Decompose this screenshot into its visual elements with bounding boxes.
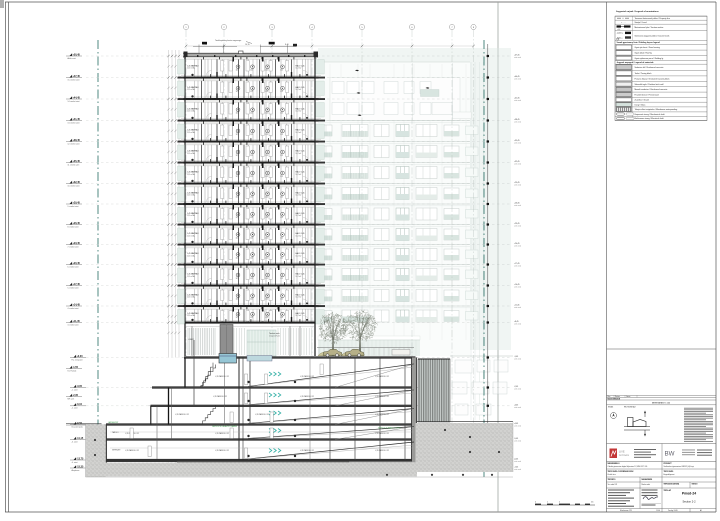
svg-text:12,5: 12,5 <box>280 217 283 219</box>
svg-text:Feszitett beton / Prestressed: Feszitett beton / Prestressed <box>635 94 659 97</box>
svg-text:MF. szint: MF. szint <box>68 397 75 400</box>
svg-text:Obudai gimnazium digital fejle: Obudai gimnazium digital fejlesztes 12,3… <box>608 465 648 468</box>
svg-text:12,5: 12,5 <box>265 197 268 199</box>
svg-text:-2,35: -2,35 <box>73 394 79 397</box>
svg-text:12,5: 12,5 <box>280 317 283 319</box>
svg-text:-13,75: -13,75 <box>77 457 84 460</box>
svg-text:GEPESZET: GEPESZET <box>112 450 121 452</box>
svg-text:1,45 NAPPALI: 1,45 NAPPALI <box>187 232 199 235</box>
svg-text:Leiras: Leiras <box>626 396 631 398</box>
svg-text:13. emelet szint: 13. emelet szint <box>68 121 80 124</box>
svg-text:HALO 1,45: HALO 1,45 <box>296 252 305 255</box>
svg-text:HALO 1,45: HALO 1,45 <box>296 312 305 315</box>
svg-text:14,2 m2: 14,2 m2 <box>296 276 302 278</box>
svg-text:+32,45: +32,45 <box>514 161 520 163</box>
svg-text:-11,15: -11,15 <box>77 437 84 440</box>
svg-text:Valaszfal tegla / Partition br: Valaszfal tegla / Partition brick wall <box>635 83 665 86</box>
svg-text:Architekts: Architekts <box>619 454 630 457</box>
svg-text:MUNKATARS: MUNKATARS <box>642 478 653 481</box>
svg-text:HALO 1,45: HALO 1,45 <box>296 64 305 67</box>
svg-text:7. emelet szint: 7. emelet szint <box>68 245 79 248</box>
svg-text:Vasalt gyartmany lista / Foldi: Vasalt gyartmany lista / Folding layers … <box>617 41 661 44</box>
svg-text:+14,45: +14,45 <box>73 303 81 306</box>
svg-text:MODOSITASOK: MODOSITASOK <box>608 398 621 401</box>
svg-text:Gepeszeti strang / Mechanical: Gepeszeti strang / Mechanical shaft <box>635 113 666 116</box>
svg-text:+29,45: +29,45 <box>73 201 81 204</box>
svg-text:-2,05: -2,05 <box>514 386 518 388</box>
svg-text:-8,55: -8,55 <box>77 422 83 425</box>
svg-text:+17,45: +17,45 <box>73 283 81 286</box>
svg-text:+38,45: +38,45 <box>73 139 81 142</box>
svg-text:Tetokert szerk.: Tetokert szerk. <box>269 332 281 335</box>
svg-text:PROJEKT: PROJEKT <box>664 463 673 465</box>
svg-text:14. emelet szint: 14. emelet szint <box>68 100 80 103</box>
svg-text:+20,45: +20,45 <box>73 262 81 265</box>
svg-text:-1. szint: -1. szint <box>72 388 78 391</box>
svg-text:10. emelet szint: 10. emelet szint <box>68 184 80 187</box>
svg-text:12,5: 12,5 <box>250 299 253 301</box>
svg-text:Zuzottko / Gravel: Zuzottko / Gravel <box>635 99 650 102</box>
svg-text:HALO 1,45: HALO 1,45 <box>296 293 305 296</box>
svg-text:Utcaszint jarda: Utcaszint jarda <box>72 425 83 428</box>
svg-text:12,5: 12,5 <box>250 317 253 319</box>
svg-text:12,5: 12,5 <box>236 197 239 199</box>
svg-text:14,2 m2: 14,2 m2 <box>296 195 302 197</box>
svg-text:+0,0: +0,0 <box>617 29 620 31</box>
svg-text:12,5: 12,5 <box>280 176 283 178</box>
svg-text:+26,45: +26,45 <box>73 222 81 225</box>
svg-text:Porozus falazat / Insulated ma: Porozus falazat / Insulated masonry bloc… <box>635 78 670 81</box>
svg-text:-2. szint: -2. szint <box>72 407 78 410</box>
svg-text:+41,45: +41,45 <box>514 98 520 100</box>
svg-text:-4,05: -4,05 <box>514 423 518 425</box>
svg-text:12,5: 12,5 <box>265 299 268 301</box>
svg-text:-1,55: -1,55 <box>73 366 79 369</box>
svg-text:+35,45: +35,45 <box>514 140 520 142</box>
svg-text:12,5: 12,5 <box>236 155 239 157</box>
svg-text:HALO 1,45: HALO 1,45 <box>296 273 305 276</box>
svg-text:12,5: 12,5 <box>250 237 253 239</box>
svg-text:1,45 NAPPALI: 1,45 NAPPALI <box>187 129 199 132</box>
svg-text:HALO 1,45: HALO 1,45 <box>296 129 305 132</box>
svg-text:-3,05: -3,05 <box>514 405 518 407</box>
svg-text:+47,45: +47,45 <box>514 55 520 57</box>
svg-text:+17,45: +17,45 <box>514 263 520 265</box>
svg-text:12,5: 12,5 <box>236 317 239 319</box>
svg-text:+44,45: +44,45 <box>73 96 81 99</box>
svg-text:12,5: 12,5 <box>236 299 239 301</box>
svg-text:Munkaszam 123: Munkaszam 123 <box>620 510 632 512</box>
svg-text:12. emelet szint: 12. emelet szint <box>68 142 80 145</box>
svg-text:+35,45: +35,45 <box>73 160 81 163</box>
svg-text:TERV FAZIS: TERV FAZIS <box>664 470 675 473</box>
svg-text:1:100: 1:100 <box>656 510 660 512</box>
svg-text:12,5: 12,5 <box>236 176 239 178</box>
svg-text:+ . . .: + . . . <box>621 22 626 24</box>
svg-text:Szintjel / Level: Szintjel / Level <box>635 21 648 24</box>
svg-text:0: 0 <box>535 502 536 504</box>
svg-text:Vasbeton fal / Reinforced conc: Vasbeton fal / Reinforced concrete <box>635 66 664 69</box>
svg-text:12,5: 12,5 <box>250 155 253 157</box>
svg-text:TERV FAZIS / KOZREMUKODOK: TERV FAZIS / KOZREMUKODOK <box>608 470 635 473</box>
svg-text:Talajviz elleni szigeteles / M: Talajviz elleni szigeteles / Membrane wa… <box>635 108 678 111</box>
svg-text:12,5: 12,5 <box>280 197 283 199</box>
svg-text:Terko / Paving block: Terko / Paving block <box>635 72 652 75</box>
svg-text:-4. szint: -4. szint <box>72 461 78 464</box>
svg-text:MERETARANY 1:100: MERETARANY 1:100 <box>652 401 670 404</box>
svg-text:14,2 m2: 14,2 m2 <box>296 215 302 217</box>
svg-text:-3,05: -3,05 <box>77 385 83 388</box>
svg-text:12,5: 12,5 <box>265 91 268 93</box>
svg-text:14,2 m2: 14,2 m2 <box>296 297 302 299</box>
svg-text:11. emelet szint: 11. emelet szint <box>68 163 80 166</box>
svg-text:12,5: 12,5 <box>250 217 253 219</box>
svg-text:14,2 m2: 14,2 m2 <box>296 174 302 176</box>
svg-text:Fsz. terepszint: Fsz. terepszint <box>72 358 84 361</box>
svg-text:12,5: 12,5 <box>265 317 268 319</box>
svg-text:12,5: 12,5 <box>250 70 253 72</box>
svg-text:12,5: 12,5 <box>236 91 239 93</box>
svg-text:JARDASZINT: JARDASZINT <box>108 421 118 424</box>
svg-text:+8,45: +8,45 <box>514 321 519 323</box>
svg-text:+44,45: +44,45 <box>514 76 520 78</box>
svg-text:HALO 1,45: HALO 1,45 <box>296 107 305 110</box>
svg-text:1,45 NAPPALI: 1,45 NAPPALI <box>187 312 199 315</box>
svg-text:8. emelet szint: 8. emelet szint <box>68 225 79 228</box>
svg-text:1,45 NAPPALI: 1,45 NAPPALI <box>187 293 199 296</box>
svg-text:+0,00 =: +0,00 = <box>617 33 624 35</box>
svg-text:Tetofelepitmeny kontur magassa: Tetofelepitmeny kontur magassaga <box>215 39 241 42</box>
svg-text:12,5: 12,5 <box>250 91 253 93</box>
svg-text:-6,05: -6,05 <box>514 459 518 461</box>
svg-text:+47,45: +47,45 <box>73 75 81 78</box>
svg-text:HALO 1,45: HALO 1,45 <box>296 86 305 89</box>
svg-text:1,45 NAPPALI: 1,45 NAPPALI <box>187 86 199 89</box>
svg-text:4. emelet szint: 4. emelet szint <box>68 307 79 310</box>
svg-text:12,5: 12,5 <box>250 113 253 115</box>
svg-text:12,5: 12,5 <box>280 237 283 239</box>
svg-text:12,5: 12,5 <box>280 91 283 93</box>
svg-text:12,5: 12,5 <box>250 134 253 136</box>
svg-text:+26,45: +26,45 <box>514 203 520 205</box>
svg-text:Tervezesi hatarvonal jeloles /: Tervezesi hatarvonal jeloles / Property … <box>635 17 670 20</box>
svg-text:12,5: 12,5 <box>265 217 268 219</box>
svg-text:12,5: 12,5 <box>280 70 283 72</box>
svg-text:HALO 1,45: HALO 1,45 <box>296 212 305 215</box>
svg-text:12,5: 12,5 <box>265 278 268 280</box>
svg-text:Szellemkert gimnazium 036912 (: Szellemkert gimnazium 036912 (H) Irinyi <box>664 465 695 468</box>
svg-text:GEPKOCSI BEALLO SZINT: GEPKOCSI BEALLO SZINT <box>378 427 401 430</box>
svg-text:-5,05: -5,05 <box>514 438 518 440</box>
svg-text:-7,05: -7,05 <box>514 467 518 469</box>
svg-text:Gyari nyilaszaro porral / Fold: Gyari nyilaszaro porral / Folding lg <box>635 57 664 60</box>
svg-text:12,5: 12,5 <box>236 70 239 72</box>
svg-text:12,5: 12,5 <box>265 257 268 259</box>
svg-text:-1,05: -1,05 <box>514 356 518 358</box>
svg-text:12,5: 12,5 <box>280 257 283 259</box>
svg-text:TERVEZO: TERVEZO <box>608 479 617 481</box>
svg-text:14,2 m2: 14,2 m2 <box>296 132 302 134</box>
svg-text:+41,45: +41,45 <box>73 118 81 121</box>
svg-text:Tervlap 24-05: Tervlap 24-05 <box>668 510 678 512</box>
svg-text:Attika szint: Attika szint <box>68 57 77 60</box>
svg-text:+23,45: +23,45 <box>514 223 520 225</box>
svg-text:Szintezesi alappont jeloles /: Szintezesi alappont jeloles / Datum leve… <box>635 34 670 37</box>
svg-text:12,5: 12,5 <box>280 113 283 115</box>
svg-text:MEGRENDELO: MEGRENDELO <box>608 463 621 465</box>
svg-text:+20,45: +20,45 <box>514 243 520 245</box>
svg-text:-3. szint: -3. szint <box>72 440 78 443</box>
svg-text:12,5: 12,5 <box>236 237 239 239</box>
svg-text:14,2 m2: 14,2 m2 <box>296 315 302 317</box>
svg-text:1,45 NAPPALI: 1,45 NAPPALI <box>187 273 199 276</box>
svg-text:12,5: 12,5 <box>265 70 268 72</box>
svg-text:Alaplemez: Alaplemez <box>72 469 80 472</box>
svg-text:+11,45: +11,45 <box>514 305 519 307</box>
svg-text:Jegyzetek rajzok / Legend of a: Jegyzetek rajzok / Legend of annotations <box>616 10 659 13</box>
svg-text:1,45 NAPPALI: 1,45 NAPPALI <box>187 252 199 255</box>
svg-text:3. emelet szint: 3. emelet szint <box>68 323 79 326</box>
svg-text:1,45 NAPPALI: 1,45 NAPPALI <box>187 212 199 215</box>
svg-text:Elektromos strang / Electrical: Elektromos strang / Electrical shaft <box>635 117 665 120</box>
svg-text:12,5: 12,5 <box>280 155 283 157</box>
svg-text:Kiviteli terv: Kiviteli terv <box>608 473 616 476</box>
svg-text:1,45 NAPPALI: 1,45 NAPPALI <box>187 191 199 194</box>
svg-text:12,5: 12,5 <box>236 113 239 115</box>
svg-text:5. emelet szint: 5. emelet szint <box>68 286 79 289</box>
svg-text:Engedelyezesi: Engedelyezesi <box>664 474 676 476</box>
svg-text:14,2 m2: 14,2 m2 <box>296 153 302 155</box>
svg-text:12,5: 12,5 <box>250 197 253 199</box>
svg-text:HALO 1,45: HALO 1,45 <box>296 191 305 194</box>
svg-text:12,5: 12,5 <box>236 217 239 219</box>
svg-text:12,5: 12,5 <box>280 278 283 280</box>
svg-text:+11,45: +11,45 <box>73 320 81 323</box>
svg-text:1,45 NAPPALI: 1,45 NAPPALI <box>187 150 199 153</box>
svg-text:1,45 NAPPALI: 1,45 NAPPALI <box>187 171 199 174</box>
svg-text:8,40: 8,40 <box>285 44 289 46</box>
svg-text:HALO 1,45: HALO 1,45 <box>296 150 305 153</box>
svg-text:Monolit vasbeton / Reinforced: Monolit vasbeton / Reinforced concrete <box>635 88 668 91</box>
svg-text:LIVE: LIVE <box>619 450 625 454</box>
svg-text:15. emelet szint: 15. emelet szint <box>68 78 80 81</box>
svg-text:12,5: 12,5 <box>236 278 239 280</box>
svg-text:14,2 m2: 14,2 m2 <box>296 89 302 91</box>
svg-text:12,5: 12,5 <box>250 257 253 259</box>
svg-text:HALO 1,45: HALO 1,45 <box>296 232 305 235</box>
svg-text:+23,45: +23,45 <box>73 242 81 245</box>
svg-text:12,5: 12,5 <box>250 176 253 178</box>
svg-text:Section 2-2: Section 2-2 <box>682 500 696 504</box>
svg-text:BW: BW <box>665 450 675 457</box>
svg-text:12,5: 12,5 <box>280 134 283 136</box>
svg-text:GEPKOCSI LEHAJTO RAMPA: GEPKOCSI LEHAJTO RAMPA <box>212 425 237 428</box>
svg-text:12,5: 12,5 <box>265 155 268 157</box>
svg-text:+29,45: +29,45 <box>514 182 520 184</box>
svg-text:14,2 m2: 14,2 m2 <box>296 68 302 70</box>
svg-text:1,45 NAPPALI: 1,45 NAPPALI <box>187 107 199 110</box>
svg-text:12,5: 12,5 <box>265 176 268 178</box>
svg-text:HALO 1,45: HALO 1,45 <box>296 171 305 174</box>
svg-text:12,5: 12,5 <box>236 257 239 259</box>
svg-text:1,45 NAPPALI: 1,45 NAPPALI <box>187 64 199 67</box>
svg-text:14,2 m2: 14,2 m2 <box>296 255 302 257</box>
svg-text:+38,45: +38,45 <box>514 119 520 121</box>
svg-text:-0,00 =: -0,00 = <box>617 37 624 39</box>
svg-text:Jegyzek anyagok / Legend of ma: Jegyzek anyagok / Legend of materials <box>617 61 655 64</box>
svg-text:10,35: 10,35 <box>245 44 250 46</box>
svg-text:+32,45: +32,45 <box>73 181 81 184</box>
svg-text:Pmod-24: Pmod-24 <box>682 492 696 496</box>
svg-text:12,5: 12,5 <box>236 134 239 136</box>
svg-text:-6,10: -6,10 <box>77 403 83 406</box>
svg-text:1: 1 <box>547 502 548 504</box>
svg-text:Uveg / Glass: Uveg / Glass <box>635 104 646 106</box>
svg-text:12,5: 12,5 <box>250 278 253 280</box>
svg-text:VERZIO: VERZIO <box>692 484 699 486</box>
svg-text:12,5: 12,5 <box>265 113 268 115</box>
svg-text:12,5: 12,5 <box>280 299 283 301</box>
svg-text:12,5: 12,5 <box>265 237 268 239</box>
svg-text:2: 2 <box>559 502 560 504</box>
svg-text:Metszetvonal jele / Section ma: Metszetvonal jele / Section marker <box>635 26 664 29</box>
svg-text:14,2 m2: 14,2 m2 <box>296 111 302 113</box>
svg-text:14,2 m2: 14,2 m2 <box>296 235 302 237</box>
svg-text:9. emelet szint: 9. emelet szint <box>68 205 79 208</box>
svg-text:6. emelet szint: 6. emelet szint <box>68 265 79 268</box>
svg-text:+14,45: +14,45 <box>514 284 520 286</box>
svg-text:+50,45: +50,45 <box>73 53 81 56</box>
svg-text:+0,00: +0,00 <box>77 355 84 358</box>
svg-text:12,5: 12,5 <box>265 134 268 136</box>
svg-text:Gyari ajto keret / Door framin: Gyari ajto keret / Door framing <box>635 46 660 49</box>
svg-text:-15,35: -15,35 <box>77 465 84 468</box>
svg-text:K1. Parkolo: K1. Parkolo <box>68 369 77 372</box>
svg-text:Gyari ablak / Roof lg: Gyari ablak / Roof lg <box>635 52 652 55</box>
